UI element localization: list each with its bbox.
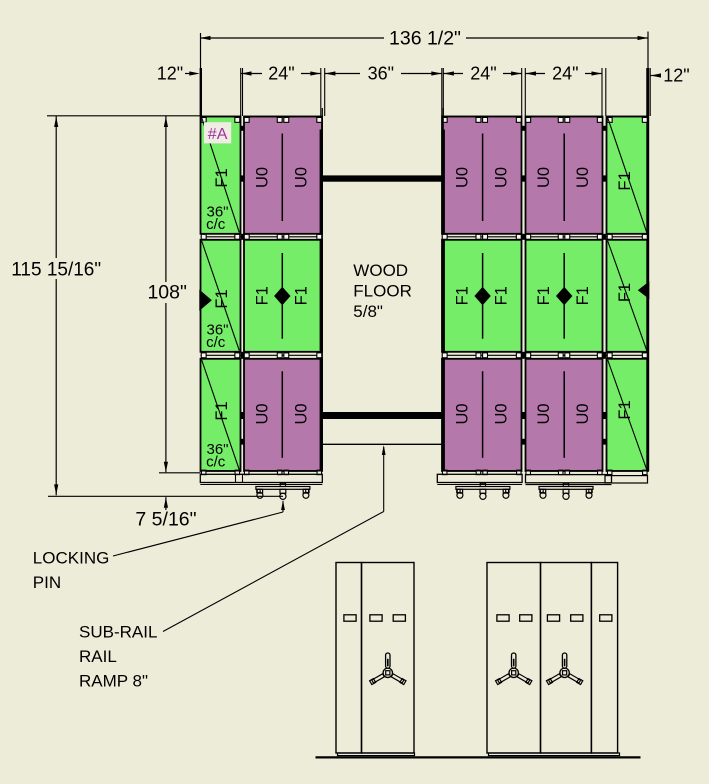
svg-text:c/c: c/c: [206, 334, 226, 351]
svg-text:5/8": 5/8": [353, 302, 383, 321]
svg-text:U0: U0: [292, 167, 310, 188]
svg-text:#A: #A: [208, 126, 228, 143]
svg-text:24": 24": [470, 64, 496, 84]
svg-text:U0: U0: [454, 167, 472, 188]
svg-text:F1: F1: [292, 286, 310, 305]
svg-text:F1: F1: [454, 286, 472, 305]
svg-text:U0: U0: [454, 403, 472, 424]
svg-text:U0: U0: [574, 167, 592, 188]
svg-text:FLOOR: FLOOR: [353, 282, 412, 301]
svg-text:U0: U0: [574, 403, 592, 424]
svg-text:U0: U0: [253, 167, 271, 188]
svg-text:SUB-RAIL: SUB-RAIL: [79, 623, 157, 642]
svg-text:U0: U0: [535, 403, 553, 424]
svg-text:LOCKING: LOCKING: [33, 549, 110, 568]
svg-text:RAIL: RAIL: [79, 647, 117, 666]
svg-text:36": 36": [368, 64, 394, 84]
svg-text:U0: U0: [253, 403, 271, 424]
svg-text:F1: F1: [574, 286, 592, 305]
svg-text:108": 108": [147, 282, 187, 304]
svg-text:F1: F1: [535, 286, 553, 305]
svg-text:136 1/2": 136 1/2": [389, 28, 461, 50]
svg-text:F1: F1: [213, 289, 231, 308]
svg-text:U0: U0: [535, 167, 553, 188]
svg-text:24": 24": [268, 64, 294, 84]
svg-text:RAMP 8": RAMP 8": [79, 672, 148, 691]
svg-text:115 15/16": 115 15/16": [11, 260, 101, 281]
svg-text:F1: F1: [213, 401, 231, 420]
svg-text:24": 24": [552, 64, 578, 84]
svg-text:F1: F1: [616, 171, 634, 190]
svg-text:U0: U0: [493, 167, 511, 188]
svg-text:U0: U0: [493, 403, 511, 424]
svg-text:c/c: c/c: [206, 453, 226, 470]
svg-text:c/c: c/c: [206, 216, 226, 233]
svg-text:F1: F1: [616, 283, 634, 302]
svg-text:12": 12": [663, 66, 689, 86]
svg-text:PIN: PIN: [33, 573, 61, 592]
svg-text:F1: F1: [493, 286, 511, 305]
svg-text:U0: U0: [292, 403, 310, 424]
svg-text:F1: F1: [253, 286, 271, 305]
svg-text:F1: F1: [616, 400, 634, 419]
svg-text:7 5/16": 7 5/16": [135, 509, 196, 531]
svg-text:F1: F1: [213, 168, 231, 187]
svg-text:WOOD: WOOD: [353, 261, 408, 280]
svg-text:12": 12": [157, 64, 183, 84]
